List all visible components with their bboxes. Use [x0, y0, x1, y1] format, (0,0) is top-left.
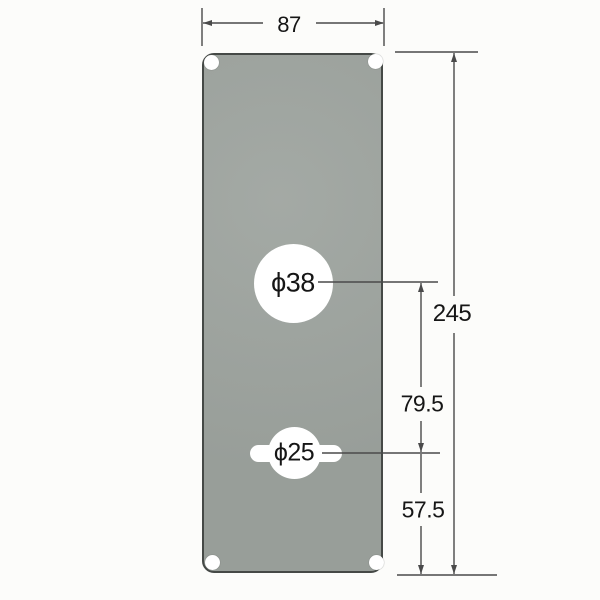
dim-width-label: 87: [277, 14, 300, 36]
screw-hole-bottom-right: [369, 555, 384, 570]
arrow-up-icon: [418, 283, 424, 292]
arrow-left-icon: [203, 20, 212, 26]
arrow-down-icon: [418, 443, 424, 452]
arrow-up-icon: [451, 53, 457, 62]
arrow-right-icon: [375, 20, 384, 26]
technical-drawing-canvas: 87 245 79.5 57.5 ϕ38 ϕ25: [0, 0, 600, 600]
hole-dia-38-label: ϕ38: [271, 270, 315, 297]
screw-hole-top-right: [368, 54, 383, 69]
dim-bottom-offset-label: 57.5: [402, 499, 445, 522]
screw-hole-top-left: [204, 55, 219, 70]
arrow-down-icon: [418, 565, 424, 574]
arrow-down-icon: [451, 565, 457, 574]
dim-height-label: 245: [433, 302, 472, 326]
hole-dia-25-label: ϕ25: [274, 441, 314, 466]
dim-center-distance-label: 79.5: [401, 393, 444, 416]
screw-hole-bottom-left: [205, 555, 220, 570]
